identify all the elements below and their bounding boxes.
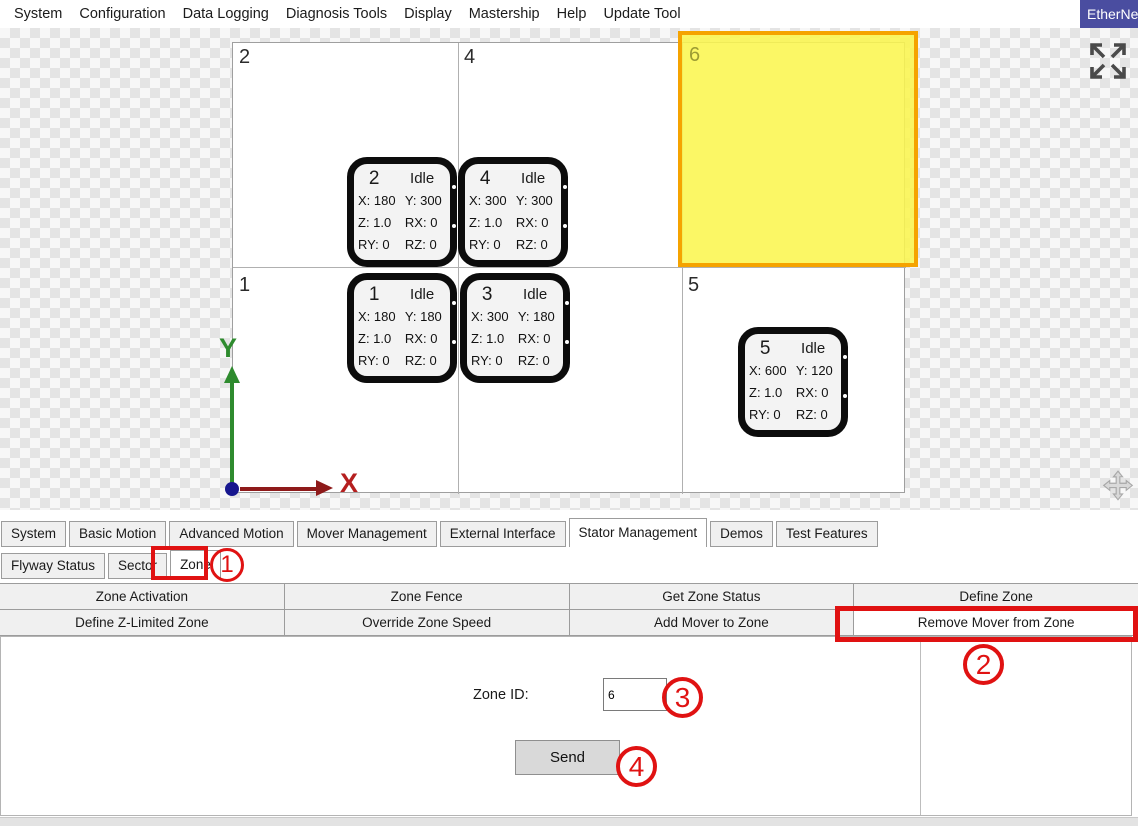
remove-mover-panel xyxy=(0,636,1132,816)
flyway-canvas[interactable]: 2 4 1 5 6 2 Idle X: 180 Y: 300 Z: 1.0 RX… xyxy=(0,28,1138,510)
mover-widget-3[interactable]: 3 Idle X: 300 Y: 180 Z: 1.0 RX: 0 RY: 0 … xyxy=(460,273,570,383)
mover-coord-rx: RX: 0 xyxy=(405,212,450,234)
menu-update-tool[interactable]: Update Tool xyxy=(603,6,680,22)
x-axis-line xyxy=(240,487,318,491)
mover-coord-x: X: 300 xyxy=(471,306,518,328)
subtab-sector[interactable]: Sector xyxy=(108,553,167,579)
mover-coord-y: Y: 120 xyxy=(796,360,841,382)
tab-mover-management[interactable]: Mover Management xyxy=(297,521,437,547)
tab-stator-management[interactable]: Stator Management xyxy=(569,518,708,547)
zone-action-zone-activation[interactable]: Zone Activation xyxy=(0,583,285,610)
grid-divider xyxy=(233,267,906,268)
mover-status: Idle xyxy=(394,283,450,306)
zone-id-input[interactable] xyxy=(603,678,667,711)
subtab-flyway-status[interactable]: Flyway Status xyxy=(1,553,105,579)
y-axis-label: Y xyxy=(219,333,237,364)
mover-coord-x: X: 300 xyxy=(469,190,516,212)
mover-coord-x: X: 180 xyxy=(358,190,405,212)
tab-external-interface[interactable]: External Interface xyxy=(440,521,566,547)
tab-demos[interactable]: Demos xyxy=(710,521,773,547)
mover-coord-y: Y: 300 xyxy=(516,190,561,212)
mover-id: 1 xyxy=(354,283,394,306)
mover-coord-rz: RZ: 0 xyxy=(405,234,450,256)
mover-widget-4[interactable]: 4 Idle X: 300 Y: 300 Z: 1.0 RX: 0 RY: 0 … xyxy=(458,157,568,267)
mover-coord-rz: RZ: 0 xyxy=(516,234,561,256)
mover-id: 2 xyxy=(354,167,394,190)
tab-system[interactable]: System xyxy=(1,521,66,547)
mover-coord-z: Z: 1.0 xyxy=(358,328,405,350)
zone-action-define-zone[interactable]: Define Zone xyxy=(853,583,1138,610)
grid-divider xyxy=(458,43,459,494)
mover-widget-5[interactable]: 5 Idle X: 600 Y: 120 Z: 1.0 RX: 0 RY: 0 … xyxy=(738,327,848,437)
menu-mastership[interactable]: Mastership xyxy=(469,6,540,22)
pan-move-icon[interactable] xyxy=(1102,470,1134,502)
menu-diagnosis-tools[interactable]: Diagnosis Tools xyxy=(286,6,387,22)
mover-coord-rx: RX: 0 xyxy=(796,382,841,404)
mover-coord-z: Z: 1.0 xyxy=(358,212,405,234)
mover-marker-dot xyxy=(563,224,567,228)
menu-help[interactable]: Help xyxy=(557,6,587,22)
zone-action-override-zone-speed[interactable]: Override Zone Speed xyxy=(284,609,570,636)
zone-id-label: Zone ID: xyxy=(473,687,529,703)
mover-marker-dot xyxy=(452,224,456,228)
menu-configuration[interactable]: Configuration xyxy=(79,6,165,22)
zone-action-tabs: Zone Activation Zone Fence Get Zone Stat… xyxy=(0,584,1138,636)
mover-coord-y: Y: 300 xyxy=(405,190,450,212)
zone-6-label: 6 xyxy=(689,44,700,67)
menu-display[interactable]: Display xyxy=(404,6,452,22)
menu-system[interactable]: System xyxy=(14,6,62,22)
zone-action-get-zone-status[interactable]: Get Zone Status xyxy=(569,583,855,610)
fullscreen-expand-icon[interactable] xyxy=(1085,38,1131,84)
mover-coord-x: X: 600 xyxy=(749,360,796,382)
tile-label-2: 2 xyxy=(239,46,250,69)
mover-id: 3 xyxy=(467,283,507,306)
mover-coord-z: Z: 1.0 xyxy=(471,328,518,350)
tab-basic-motion[interactable]: Basic Motion xyxy=(69,521,166,547)
main-tab-bar: System Basic Motion Advanced Motion Move… xyxy=(1,518,878,547)
mover-coord-ry: RY: 0 xyxy=(358,234,405,256)
mover-coord-z: Z: 1.0 xyxy=(469,212,516,234)
zone-action-add-mover-to-zone[interactable]: Add Mover to Zone xyxy=(569,609,855,636)
menu-bar: System Configuration Data Logging Diagno… xyxy=(0,0,1138,28)
y-axis-line xyxy=(230,380,234,486)
mover-marker-dot xyxy=(452,301,456,305)
mover-id: 5 xyxy=(745,337,785,360)
y-axis-arrowhead xyxy=(224,366,240,383)
mover-marker-dot xyxy=(843,355,847,359)
send-button[interactable]: Send xyxy=(515,740,620,775)
tab-test-features[interactable]: Test Features xyxy=(776,521,878,547)
mover-marker-dot xyxy=(452,340,456,344)
x-axis-arrowhead xyxy=(316,480,333,496)
zone-action-remove-mover-from-zone[interactable]: Remove Mover from Zone xyxy=(853,609,1138,636)
mover-coord-ry: RY: 0 xyxy=(471,350,518,372)
panel-divider xyxy=(920,637,921,815)
mover-widget-1[interactable]: 1 Idle X: 180 Y: 180 Z: 1.0 RX: 0 RY: 0 … xyxy=(347,273,457,383)
menu-data-logging[interactable]: Data Logging xyxy=(183,6,269,22)
mover-marker-dot xyxy=(843,394,847,398)
tile-label-4: 4 xyxy=(464,46,475,69)
mover-marker-dot xyxy=(563,185,567,189)
mover-status: Idle xyxy=(505,167,561,190)
mover-coord-rx: RX: 0 xyxy=(405,328,450,350)
stator-sub-tab-bar: Flyway Status Sector Zone xyxy=(1,550,221,579)
tile-label-5: 5 xyxy=(688,274,699,297)
mover-coord-ry: RY: 0 xyxy=(749,404,796,426)
mover-coord-rz: RZ: 0 xyxy=(518,350,563,372)
ethernet-button[interactable]: EtherNet xyxy=(1080,0,1138,28)
mover-status: Idle xyxy=(507,283,563,306)
zone-6-highlight[interactable]: 6 xyxy=(678,31,918,267)
mover-status: Idle xyxy=(785,337,841,360)
subtab-zone[interactable]: Zone xyxy=(170,550,221,579)
mover-coord-ry: RY: 0 xyxy=(469,234,516,256)
mover-coord-rx: RX: 0 xyxy=(518,328,563,350)
bottom-status-strip xyxy=(0,817,1138,826)
mover-coord-ry: RY: 0 xyxy=(358,350,405,372)
x-axis-label: X xyxy=(340,468,358,499)
mover-coord-y: Y: 180 xyxy=(405,306,450,328)
mover-marker-dot xyxy=(565,301,569,305)
mover-widget-2[interactable]: 2 Idle X: 180 Y: 300 Z: 1.0 RX: 0 RY: 0 … xyxy=(347,157,457,267)
mover-coord-y: Y: 180 xyxy=(518,306,563,328)
mover-marker-dot xyxy=(452,185,456,189)
mover-id: 4 xyxy=(465,167,505,190)
tile-label-1: 1 xyxy=(239,274,250,297)
zone-action-zone-fence[interactable]: Zone Fence xyxy=(284,583,570,610)
tab-advanced-motion[interactable]: Advanced Motion xyxy=(169,521,293,547)
zone-action-define-z-limited-zone[interactable]: Define Z-Limited Zone xyxy=(0,609,285,636)
origin-dot xyxy=(225,482,239,496)
mover-coord-rz: RZ: 0 xyxy=(796,404,841,426)
mover-marker-dot xyxy=(565,340,569,344)
mover-coord-z: Z: 1.0 xyxy=(749,382,796,404)
mover-coord-x: X: 180 xyxy=(358,306,405,328)
mover-coord-rz: RZ: 0 xyxy=(405,350,450,372)
mover-status: Idle xyxy=(394,167,450,190)
mover-coord-rx: RX: 0 xyxy=(516,212,561,234)
